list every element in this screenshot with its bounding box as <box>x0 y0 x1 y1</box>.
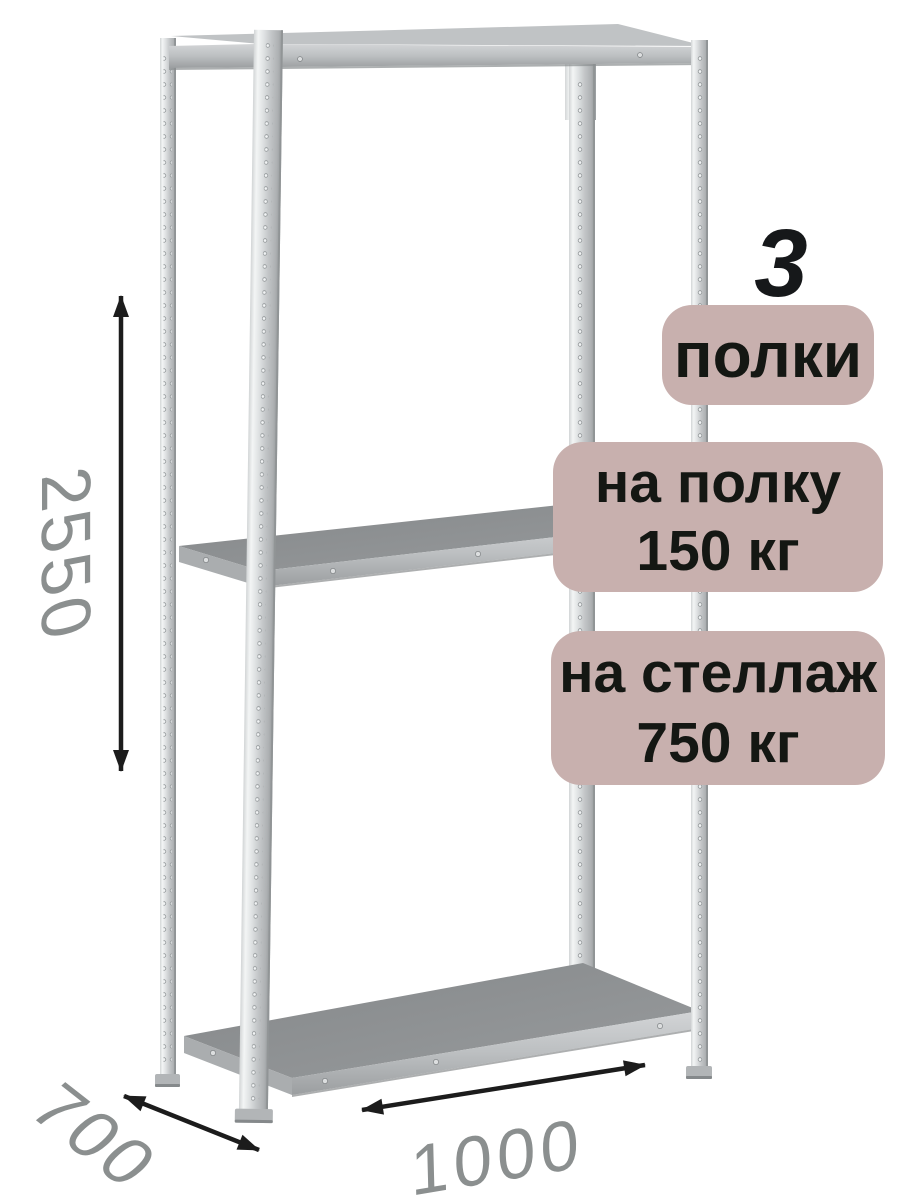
badge-rack-load: на стеллаж 750 кг <box>551 631 885 785</box>
post-back-left <box>155 38 180 1087</box>
product-image: 2550 700 1000 3 полки на полку 150 кг на… <box>0 0 900 1200</box>
shelf-top <box>169 24 705 70</box>
badge-shelves-label: полки <box>662 305 874 405</box>
badge-shelf-load: на полку 150 кг <box>553 442 883 592</box>
shelves-count: 3 <box>731 212 831 316</box>
badge-shelf-load-line1: на полку <box>553 449 883 517</box>
badge-shelf-load-line2: 150 кг <box>553 517 883 585</box>
badge-shelves-text: полки <box>674 319 862 391</box>
badge-rack-load-line1: на стеллаж <box>551 638 885 708</box>
rack-illustration <box>0 0 900 1200</box>
height-dimension-label: 2550 <box>26 395 106 715</box>
badge-rack-load-line2: 750 кг <box>551 708 885 778</box>
